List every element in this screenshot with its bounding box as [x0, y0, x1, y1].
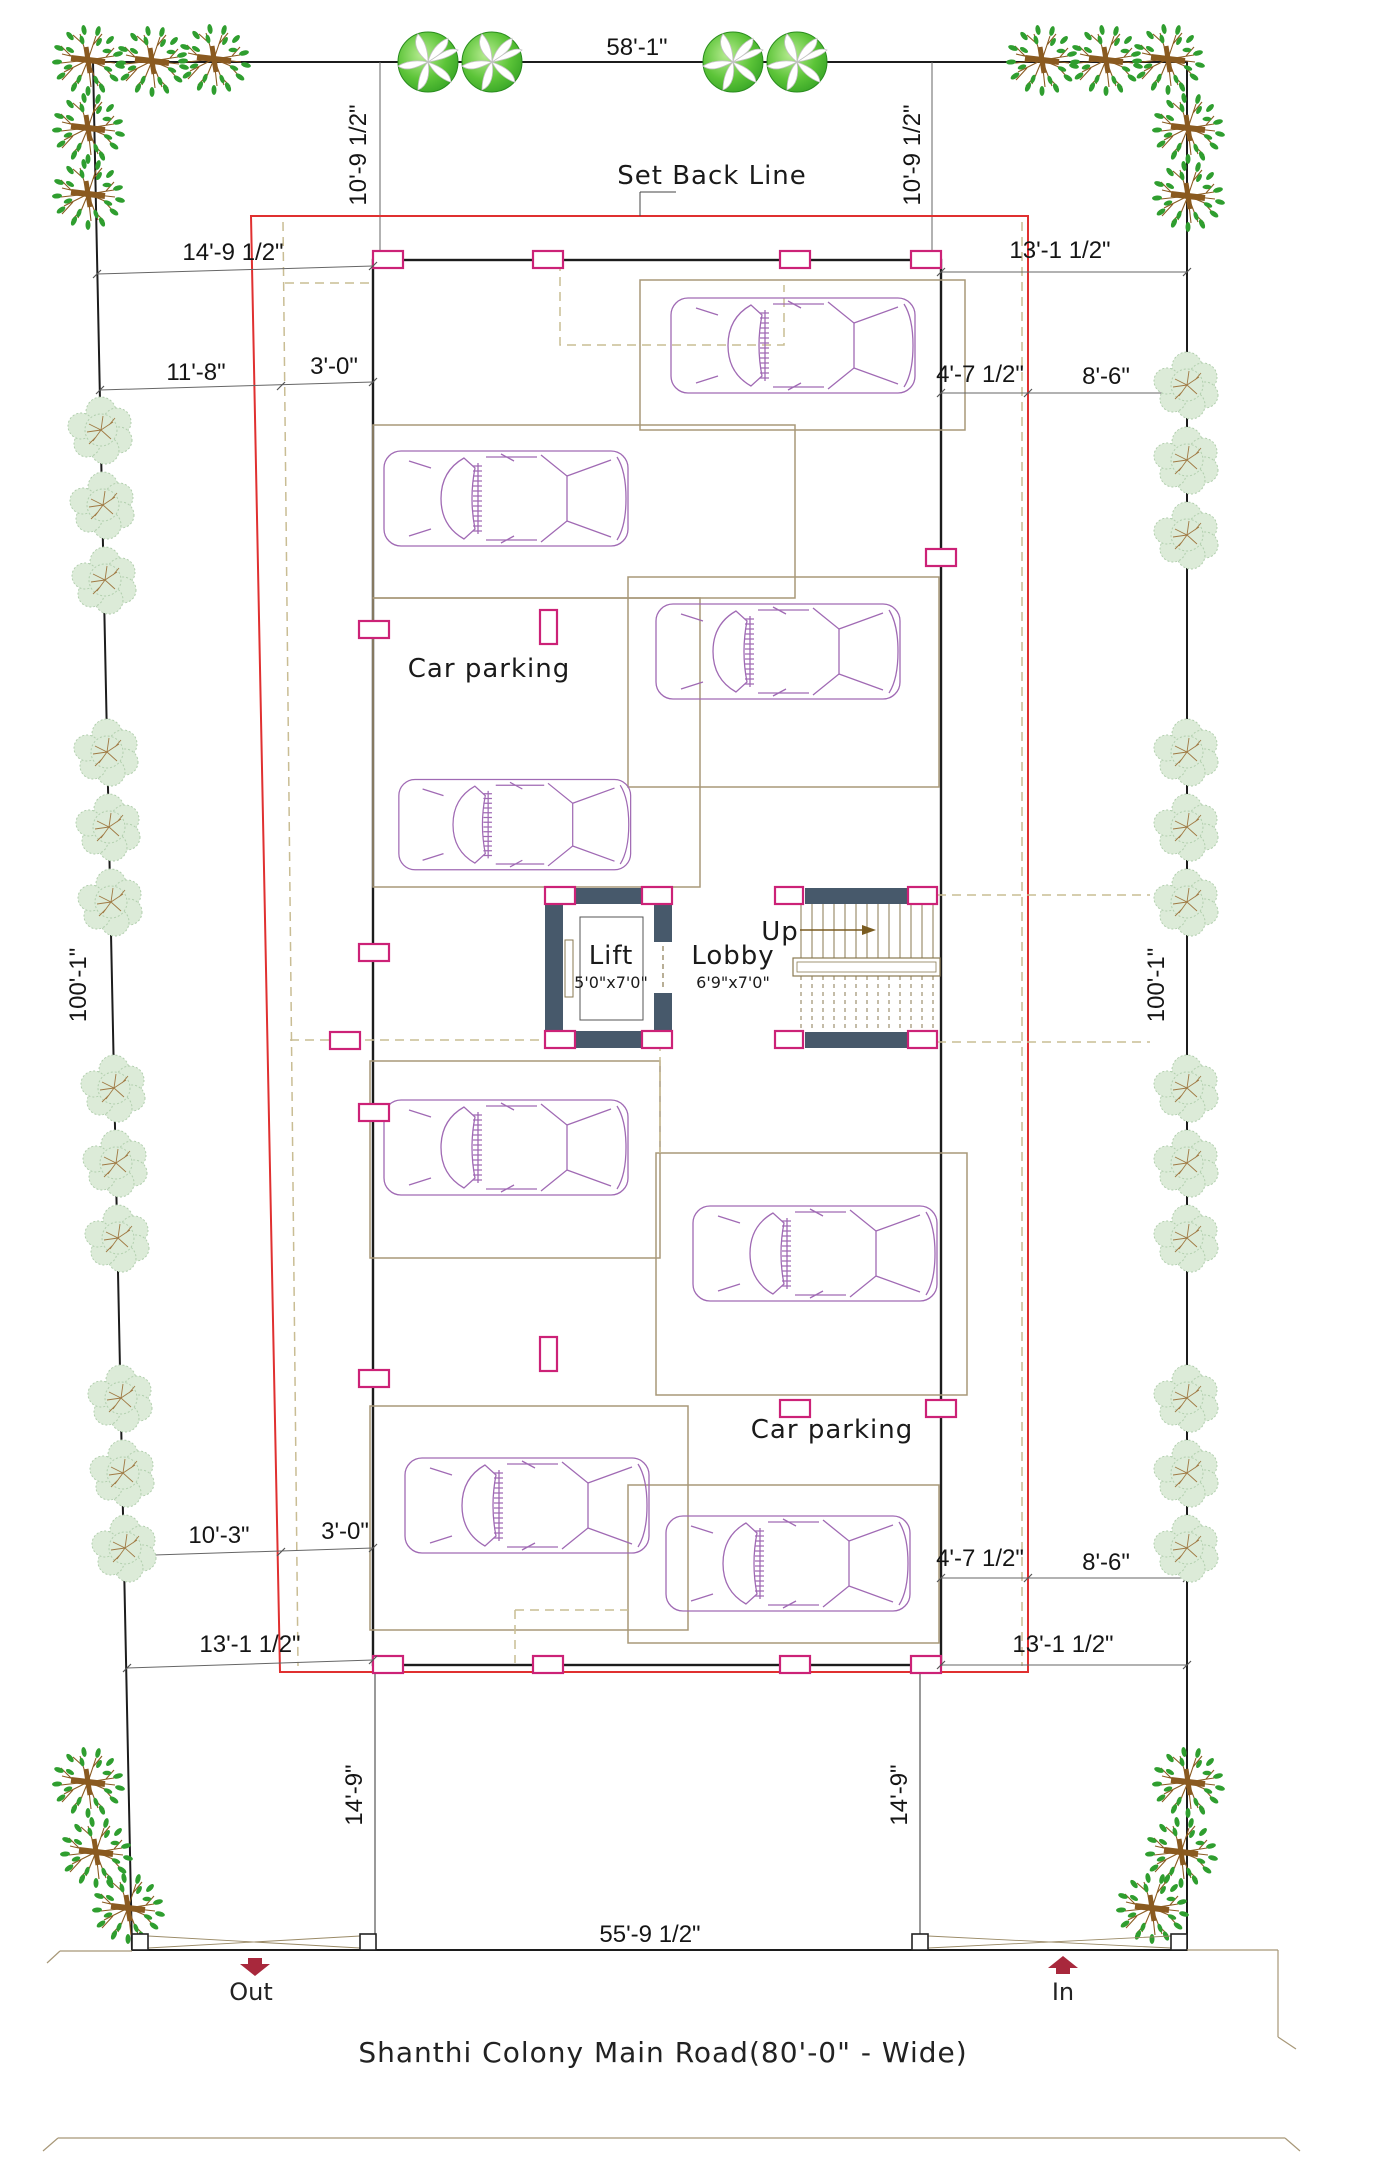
reference-lines: [375, 62, 932, 1950]
car-parking-lower-label: Car parking: [751, 1415, 913, 1445]
dim-upper-left-b: 3'-0": [310, 353, 358, 380]
dim-offset-top-left: 14'-9 1/2": [182, 239, 283, 266]
dim-height-left: 100'-1": [65, 948, 92, 1022]
in-arrow-icon: [1048, 1956, 1078, 1974]
dim-wall-left: 14'-9": [341, 1764, 368, 1825]
tree-icon: [1152, 161, 1226, 232]
tree-icon: [1152, 1747, 1226, 1818]
staircase: [793, 888, 940, 1048]
bush-icon: [1154, 1055, 1218, 1122]
dim-offset-top-right: 13'-1 1/2": [1009, 237, 1110, 264]
site-plan: 58'-1" 10'-9 1/2" 10'-9 1/2" Set Back Li…: [0, 0, 1376, 2160]
dim-lower-left-a: 10'-3": [188, 1522, 249, 1549]
out-label: Out: [229, 1978, 273, 2006]
bush-icon: [1154, 1440, 1218, 1507]
car-icon: [405, 1458, 649, 1553]
dim-top-width: 58'-1": [606, 34, 667, 61]
car-icon: [384, 451, 628, 546]
car-icon: [656, 604, 900, 699]
tree-icon: [52, 159, 126, 230]
setback-label: Set Back Line: [617, 161, 807, 191]
tree-icon: [178, 24, 252, 95]
tree-icon: [1145, 1817, 1219, 1888]
car-icon: [399, 780, 631, 870]
car-icon: [384, 1100, 628, 1195]
setback-leader: [640, 192, 676, 216]
out-arrow-icon: [240, 1958, 270, 1976]
round-tree-icon: [462, 32, 522, 92]
tree-icon: [1006, 25, 1080, 96]
tree-icon: [1152, 93, 1226, 164]
dim-upper-right-a: 4'-7 1/2": [936, 361, 1024, 388]
bush-icon: [70, 472, 134, 539]
car-icon: [693, 1206, 937, 1301]
round-tree-icon: [767, 32, 827, 92]
round-tree-icon: [398, 32, 458, 92]
dim-lower-left-b: 3'-0": [321, 1518, 369, 1545]
bush-icon: [1154, 794, 1218, 861]
gate-out: [132, 1934, 376, 1976]
dim-offset-bottom-right: 13'-1 1/2": [1012, 1631, 1113, 1658]
dim-lower-right-b: 8'-6": [1082, 1549, 1130, 1576]
bush-icon: [72, 547, 136, 614]
tree-icon: [52, 93, 126, 164]
dim-upper-right-b: 8'-6": [1082, 363, 1130, 390]
in-label: In: [1052, 1978, 1074, 2006]
bush-icon: [83, 1130, 147, 1197]
site-plan-drawing: 58'-1" 10'-9 1/2" 10'-9 1/2" Set Back Li…: [0, 0, 1376, 2160]
dim-upper-left-a: 11'-8": [166, 359, 225, 386]
tree-icon: [52, 1747, 126, 1818]
lift-size-label: 5'0"x7'0": [574, 973, 648, 992]
dim-wall-right: 14'-9": [886, 1764, 913, 1825]
bush-icon: [1154, 1205, 1218, 1272]
up-arrow-icon: [800, 925, 876, 935]
car-parking-upper-label: Car parking: [408, 654, 570, 684]
tree-icon: [92, 1873, 166, 1944]
bush-icon: [76, 794, 140, 861]
dim-setback-left: 10'-9 1/2": [345, 104, 372, 205]
road-label: Shanthi Colony Main Road(80'-0" - Wide): [358, 2036, 967, 2069]
bush-icon: [1154, 502, 1218, 569]
car-icon: [666, 1516, 910, 1611]
lift-label: Lift: [589, 941, 634, 971]
dim-bottom-width: 55'-9 1/2": [599, 1921, 700, 1948]
gate-in: [912, 1934, 1187, 1974]
bush-icon: [90, 1440, 154, 1507]
dim-offset-bottom-left: 13'-1 1/2": [199, 1631, 300, 1658]
bush-icon: [1154, 869, 1218, 936]
up-label: Up: [761, 917, 799, 947]
lobby-size-label: 6'9"x7'0": [696, 973, 770, 992]
bush-icon: [1154, 1365, 1218, 1432]
dim-setback-right: 10'-9 1/2": [899, 104, 926, 205]
dim-lower-right-a: 4'-7 1/2": [936, 1545, 1024, 1572]
bush-icon: [92, 1515, 156, 1582]
bush-icon: [1154, 719, 1218, 786]
bush-icon: [78, 869, 142, 936]
bush-icon: [88, 1365, 152, 1432]
bush-icon: [1154, 1130, 1218, 1197]
tree-icon: [1132, 24, 1206, 95]
bush-icon: [74, 719, 138, 786]
bush-icon: [81, 1055, 145, 1122]
bush-icon: [1154, 352, 1218, 419]
bush-icon: [1154, 1515, 1218, 1582]
tree-icon: [52, 25, 126, 96]
bush-icon: [85, 1205, 149, 1272]
dimension-lines: [97, 266, 1187, 1668]
dim-height-right: 100'-1": [1143, 948, 1170, 1022]
bush-icon: [1154, 427, 1218, 494]
bush-icon: [68, 397, 132, 464]
round-tree-icon: [703, 32, 763, 92]
